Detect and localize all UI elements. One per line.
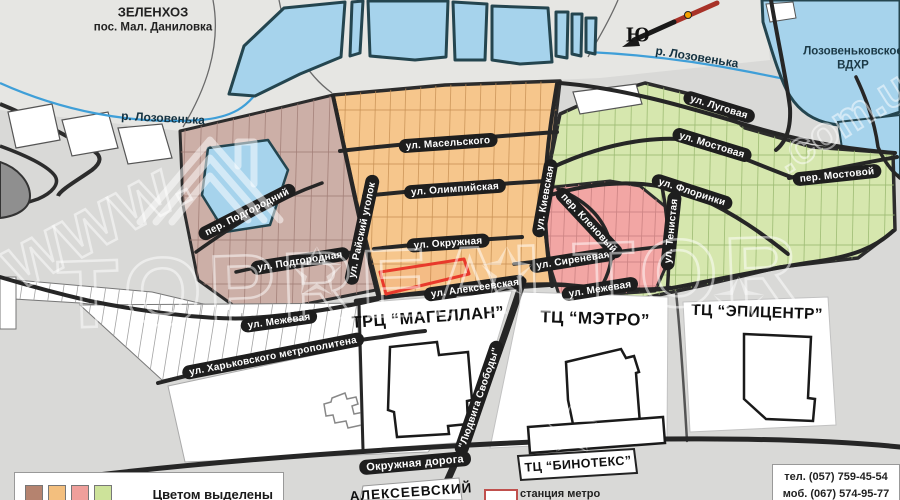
contact-box: тел. (057) 759-45-54 моб. (067) 574-95-7… — [772, 464, 900, 500]
zelenkhoz-line2: пос. Мал. Даниловка — [94, 21, 212, 35]
metro-station-icon — [484, 489, 518, 500]
compass-south-label: Ю — [626, 23, 650, 48]
legend-box: Цветом выделены — [14, 472, 284, 500]
area-label-reservoir: Лозовеньковское ВДХР — [803, 45, 900, 74]
legend-text: Цветом выделены — [153, 487, 273, 500]
legend-swatch-green — [94, 485, 112, 500]
mall-label-metro: ТЦ “МЭТРО” — [540, 307, 650, 331]
contact-mob: моб. (067) 574-95-77 — [773, 486, 899, 500]
area-label-zelenkhoz: ЗЕЛЕНХОЗ пос. Мал. Даниловка — [94, 5, 212, 36]
zelenkhoz-line1: ЗЕЛЕНХОЗ — [94, 5, 212, 21]
reservoir-line1: Лозовеньковское — [803, 45, 900, 59]
legend-swatch-orange — [48, 485, 66, 500]
legend-swatch-mauve — [25, 485, 43, 500]
map-page: ЗЕЛЕНХОЗ пос. Мал. Даниловка Лозовеньков… — [0, 0, 900, 500]
contact-tel: тел. (057) 759-45-54 — [773, 469, 899, 486]
map-canvas — [0, 0, 900, 500]
legend-swatch-pink — [71, 485, 89, 500]
reservoir-line2: ВДХР — [803, 59, 900, 73]
metro-station-label: станция метро — [520, 488, 600, 500]
